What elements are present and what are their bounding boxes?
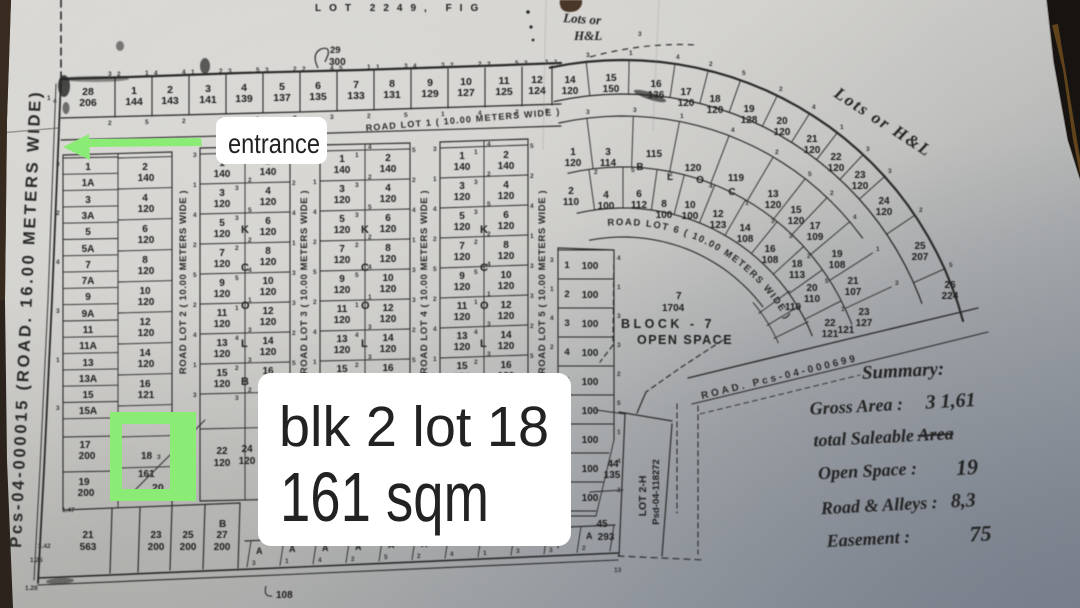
svg-text:entrance: entrance [228, 128, 320, 159]
svg-text:blk 2 lot 18: blk 2 lot 18 [279, 395, 549, 459]
svg-text:161 sqm: 161 sqm [280, 458, 489, 536]
